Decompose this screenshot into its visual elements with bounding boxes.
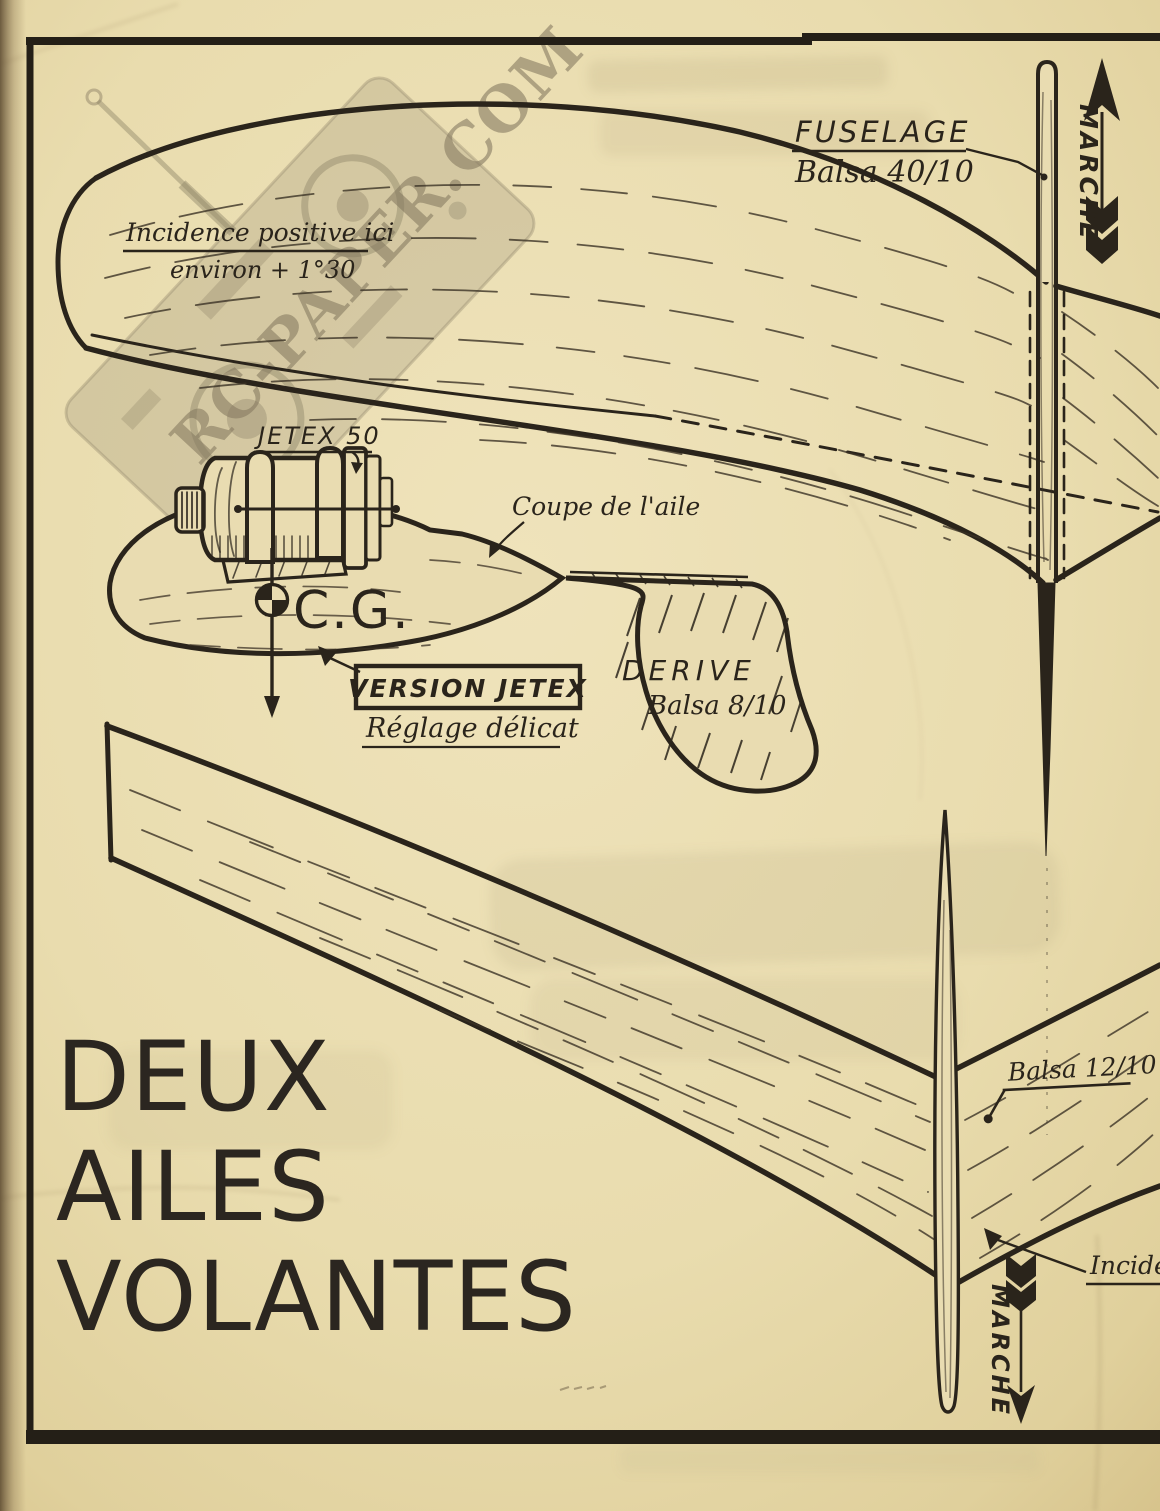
title-line-2: AILES	[56, 1131, 330, 1243]
incidence-label: Incidence	[1089, 1251, 1160, 1280]
engine-nozzle	[176, 488, 204, 532]
cg-label: C.G.	[293, 581, 411, 641]
title-line-1: DEUX	[56, 1021, 331, 1133]
marche-bottom-label: MARCHE	[986, 1284, 1014, 1417]
engine-post-right	[317, 448, 343, 558]
tuning-note-label: Réglage délicat	[365, 713, 579, 744]
scanned-plan-page: RC-PAPER.COM	[0, 0, 1160, 1511]
engine-post-left	[247, 452, 273, 562]
plan-drawing-canvas: RC-PAPER.COM	[0, 0, 1160, 1511]
engine-clip-bracket	[380, 478, 392, 526]
version-jetex-label: VERSION JETEX	[348, 674, 588, 703]
derive-material-label: Balsa 8/10	[647, 691, 786, 721]
wing-section-label: Coupe de l'aile	[512, 492, 700, 521]
fuselage-label: FUSELAGE	[795, 115, 970, 149]
title-line-3: VOLANTES	[56, 1241, 577, 1353]
incidence-note-line2: environ + 1°30	[170, 256, 355, 284]
fuselage-material-label: Balsa 40/10	[794, 155, 974, 190]
incidence-note-line1: Incidence positive ici	[125, 218, 394, 247]
jetex-label: JETEX 50	[254, 422, 381, 450]
derive-label: DERIVE	[622, 654, 756, 687]
scan-edge-shadow	[0, 0, 26, 1511]
marche-top-label: MARCHE	[1074, 104, 1103, 242]
